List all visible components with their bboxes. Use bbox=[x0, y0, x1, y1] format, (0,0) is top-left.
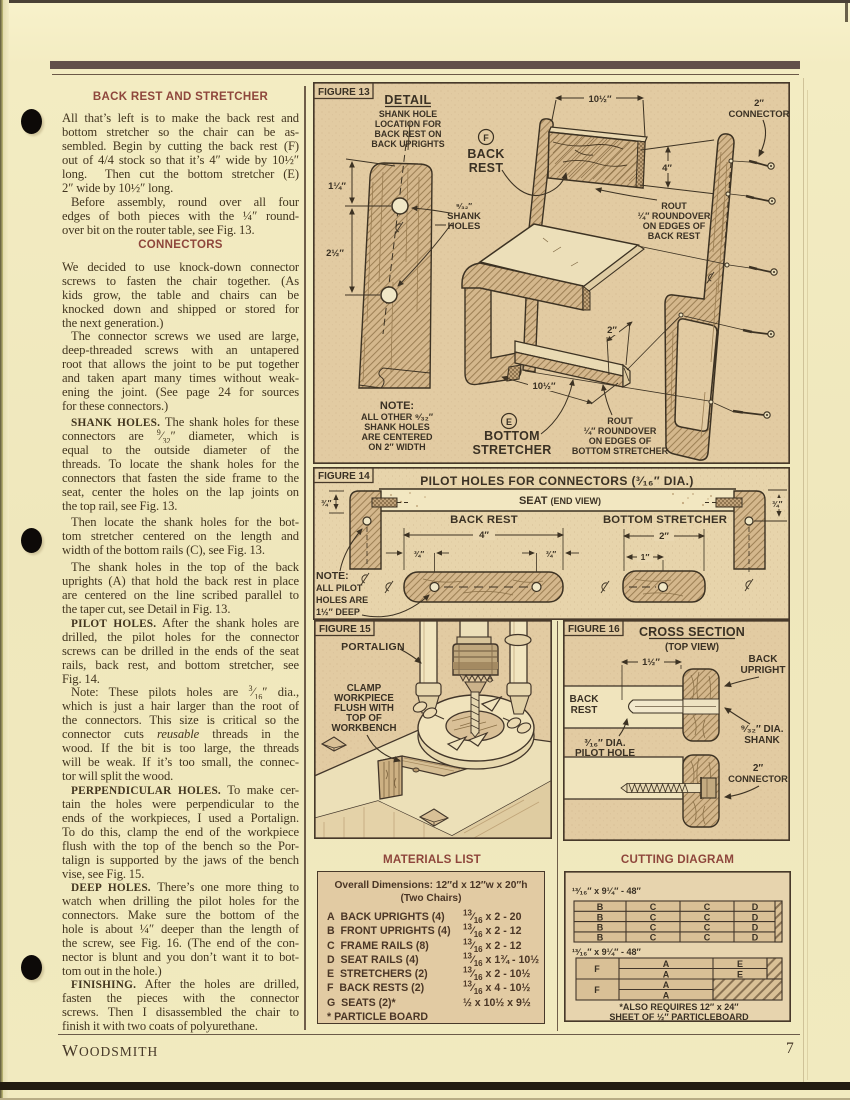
svg-text:4″: 4″ bbox=[479, 530, 489, 541]
svg-text:C: C bbox=[650, 902, 657, 912]
svg-text:C: C bbox=[704, 912, 711, 922]
svg-text:¾″: ¾″ bbox=[321, 499, 332, 508]
svg-text:HOLES: HOLES bbox=[448, 221, 481, 232]
svg-text:B: B bbox=[597, 923, 604, 933]
svg-text:1½″: 1½″ bbox=[642, 657, 660, 668]
svg-text:F: F bbox=[594, 985, 600, 995]
svg-text:F: F bbox=[483, 133, 489, 143]
svg-text:E: E bbox=[737, 970, 743, 980]
svg-text:ON 2″ WIDTH: ON 2″ WIDTH bbox=[368, 442, 425, 452]
svg-text:¹³⁄₁₆″ x 9¼″ - 48″: ¹³⁄₁₆″ x 9¼″ - 48″ bbox=[572, 947, 641, 957]
svg-text:E: E bbox=[737, 959, 743, 969]
svg-text:2½″: 2½″ bbox=[326, 248, 344, 259]
svg-text:BACK: BACK bbox=[749, 654, 779, 665]
svg-text:4″: 4″ bbox=[662, 163, 672, 174]
svg-text:B: B bbox=[597, 933, 604, 943]
svg-text:D: D bbox=[752, 912, 759, 922]
svg-text:BOTTOM: BOTTOM bbox=[484, 429, 540, 443]
svg-text:LOCATION FOR: LOCATION FOR bbox=[375, 119, 442, 129]
svg-text:¼″ ROUNDOVER: ¼″ ROUNDOVER bbox=[638, 211, 711, 221]
svg-text:A: A bbox=[663, 991, 670, 1001]
svg-text:B: B bbox=[597, 902, 604, 912]
svg-text:CROSS SECTION: CROSS SECTION bbox=[639, 625, 745, 639]
svg-text:¹³⁄₁₆″ x 9¼″ - 48″: ¹³⁄₁₆″ x 9¼″ - 48″ bbox=[572, 886, 641, 896]
svg-text:ON EDGES OF: ON EDGES OF bbox=[643, 221, 706, 231]
svg-text:ROUT: ROUT bbox=[661, 201, 687, 211]
svg-text:SHANK: SHANK bbox=[744, 735, 780, 746]
svg-text:*ALSO REQUIRES 12″ x 24″: *ALSO REQUIRES 12″ x 24″ bbox=[619, 1002, 739, 1012]
svg-text:10½″: 10½″ bbox=[532, 381, 555, 392]
svg-text:A: A bbox=[663, 980, 670, 990]
svg-text:PILOT HOLES FOR CONNECTORS (³⁄: PILOT HOLES FOR CONNECTORS (³⁄₁₆″ DIA.) bbox=[420, 474, 694, 488]
svg-text:A: A bbox=[663, 970, 670, 980]
svg-text:FIGURE 14: FIGURE 14 bbox=[318, 471, 370, 482]
svg-text:10½″: 10½″ bbox=[588, 94, 611, 105]
svg-text:1½″ DEEP: 1½″ DEEP bbox=[316, 607, 360, 617]
svg-text:CONNECTOR: CONNECTOR bbox=[728, 774, 788, 784]
svg-text:SHEET OF ½″ PARTICLEBOARD: SHEET OF ½″ PARTICLEBOARD bbox=[609, 1012, 749, 1022]
svg-text:BACK REST ON: BACK REST ON bbox=[375, 129, 442, 139]
svg-text:F: F bbox=[594, 964, 600, 974]
svg-text:NOTE:: NOTE: bbox=[380, 400, 414, 412]
svg-text:ALL OTHER ⁹⁄₃₂″: ALL OTHER ⁹⁄₃₂″ bbox=[361, 412, 434, 422]
svg-text:NOTE:: NOTE: bbox=[316, 570, 349, 582]
svg-text:FIGURE 16: FIGURE 16 bbox=[568, 624, 620, 635]
svg-text:C: C bbox=[704, 923, 711, 933]
svg-text:WORKBENCH: WORKBENCH bbox=[331, 723, 396, 734]
svg-text:CONNECTOR: CONNECTOR bbox=[728, 109, 789, 120]
svg-text:¾″: ¾″ bbox=[772, 500, 783, 509]
svg-text:C: C bbox=[650, 933, 657, 943]
svg-text:ON EDGES OF: ON EDGES OF bbox=[589, 436, 652, 446]
svg-text:SHANK HOLE: SHANK HOLE bbox=[379, 109, 437, 119]
svg-text:⁹⁄₃₂″: ⁹⁄₃₂″ bbox=[456, 202, 472, 211]
svg-text:¾″: ¾″ bbox=[414, 550, 425, 559]
svg-text:D: D bbox=[752, 923, 759, 933]
svg-text:FIGURE 13: FIGURE 13 bbox=[318, 87, 370, 98]
svg-text:BACK REST: BACK REST bbox=[648, 231, 701, 241]
svg-text:ARE CENTERED: ARE CENTERED bbox=[361, 432, 433, 442]
svg-text:¾″: ¾″ bbox=[546, 550, 557, 559]
svg-text:C: C bbox=[650, 912, 657, 922]
svg-text:REST: REST bbox=[469, 161, 504, 175]
svg-text:2″: 2″ bbox=[753, 763, 764, 774]
svg-text:¼″ ROUNDOVER: ¼″ ROUNDOVER bbox=[584, 426, 657, 436]
svg-text:B: B bbox=[597, 912, 604, 922]
svg-text:2″: 2″ bbox=[607, 325, 617, 336]
svg-text:SEAT (END VIEW): SEAT (END VIEW) bbox=[519, 495, 601, 507]
svg-text:D: D bbox=[752, 902, 759, 912]
svg-text:D: D bbox=[752, 933, 759, 943]
svg-text:ROUT: ROUT bbox=[607, 416, 633, 426]
svg-text:DETAIL: DETAIL bbox=[384, 93, 431, 107]
svg-text:REST: REST bbox=[571, 705, 598, 716]
svg-text:BACK REST: BACK REST bbox=[450, 514, 518, 526]
svg-text:ALL PILOT: ALL PILOT bbox=[316, 583, 363, 593]
svg-text:E: E bbox=[506, 417, 512, 427]
svg-text:1″: 1″ bbox=[641, 552, 650, 562]
svg-text:⁹⁄₃₂″ DIA.: ⁹⁄₃₂″ DIA. bbox=[740, 724, 783, 735]
svg-text:C: C bbox=[650, 923, 657, 933]
svg-text:UPRIGHT: UPRIGHT bbox=[741, 665, 786, 676]
svg-text:C: C bbox=[704, 933, 711, 943]
svg-text:1¼″: 1¼″ bbox=[328, 181, 346, 192]
svg-text:BOTTOM STRETCHER: BOTTOM STRETCHER bbox=[572, 446, 669, 456]
svg-text:BOTTOM STRETCHER: BOTTOM STRETCHER bbox=[603, 514, 727, 526]
svg-text:A: A bbox=[663, 959, 670, 969]
svg-text:BACK: BACK bbox=[467, 147, 504, 161]
svg-text:(TOP VIEW): (TOP VIEW) bbox=[665, 642, 719, 653]
svg-text:C: C bbox=[704, 902, 711, 912]
svg-text:2″: 2″ bbox=[754, 98, 764, 109]
svg-text:STRETCHER: STRETCHER bbox=[472, 443, 551, 457]
svg-text:BACK: BACK bbox=[570, 694, 600, 705]
svg-text:FIGURE 15: FIGURE 15 bbox=[319, 624, 371, 635]
svg-text:2″: 2″ bbox=[659, 531, 669, 542]
svg-text:PORTALIGN: PORTALIGN bbox=[341, 641, 405, 653]
svg-text:HOLES ARE: HOLES ARE bbox=[316, 595, 368, 605]
svg-text:SHANK HOLES: SHANK HOLES bbox=[364, 422, 430, 432]
